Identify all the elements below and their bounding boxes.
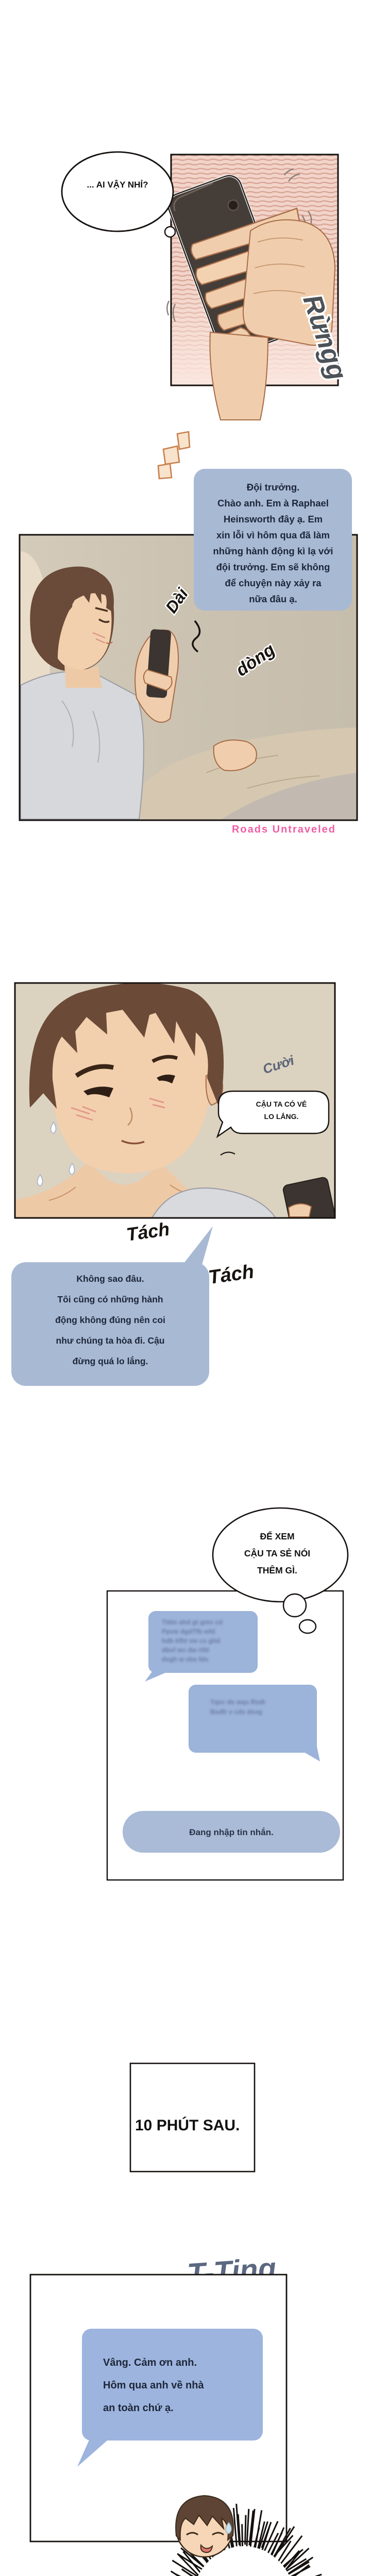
svg-text:Vâng. Cảm ơn anh.: Vâng. Cảm ơn anh. bbox=[103, 2357, 197, 2368]
svg-text:CẬU TA CÓ VẺ: CẬU TA CÓ VẺ bbox=[256, 1099, 307, 1108]
svg-text:hdb kfht vw cx ghd: hdb kfht vw cx ghd bbox=[162, 1637, 220, 1645]
svg-text:Đội trưởng.: Đội trưởng. bbox=[247, 482, 300, 493]
svg-text:Roads Untraveled: Roads Untraveled bbox=[232, 824, 336, 835]
svg-text:Tách: Tách bbox=[207, 1261, 256, 1289]
svg-text:10 PHÚT SAU.: 10 PHÚT SAU. bbox=[135, 2116, 240, 2134]
svg-text:để chuyện này xảy ra: để chuyện này xảy ra bbox=[225, 578, 322, 588]
svg-text:Tách: Tách bbox=[125, 1218, 171, 1245]
svg-text:như chúng ta hòa đi. Cậu: như chúng ta hòa đi. Cậu bbox=[56, 1335, 165, 1346]
svg-text:Hôm qua anh về nhà: Hôm qua anh về nhà bbox=[103, 2380, 204, 2391]
svg-text:nữa đâu ạ.: nữa đâu ạ. bbox=[249, 594, 297, 604]
svg-text:Chào anh. Em à Raphael: Chào anh. Em à Raphael bbox=[217, 498, 329, 509]
svg-text:Tidm ahd gt gmv cd: Tidm ahd gt gmv cd bbox=[162, 1619, 223, 1626]
svg-text:Heinsworth đây ạ. Em: Heinsworth đây ạ. Em bbox=[224, 514, 323, 524]
svg-text:xin lỗi vì hôm qua đã làm: xin lỗi vì hôm qua đã làm bbox=[216, 530, 330, 540]
svg-text:Ppvw dgdTfb wfd: Ppvw dgdTfb wfd bbox=[162, 1628, 215, 1635]
svg-text:LO LẮNG.: LO LẮNG. bbox=[264, 1112, 299, 1121]
svg-text:... AI VẬY NHỈ?: ... AI VẬY NHỈ? bbox=[87, 180, 148, 190]
svg-text:dbvf wv dw rtfd: dbvf wv dw rtfd bbox=[162, 1647, 209, 1654]
svg-text:Tôi cũng có những hành: Tôi cũng có những hành bbox=[57, 1294, 163, 1304]
svg-text:Đang nhập tin nhắn.: Đang nhập tin nhắn. bbox=[189, 1827, 273, 1837]
svg-text:Tqvc ds wqs Rsdt: Tqvc ds wqs Rsdt bbox=[210, 1699, 265, 1706]
svg-text:đội trưởng. Em sẽ không: đội trưởng. Em sẽ không bbox=[216, 562, 330, 572]
svg-text:an toàn chứ ạ.: an toàn chứ ạ. bbox=[103, 2402, 174, 2414]
svg-text:dvgh w vbs fds: dvgh w vbs fds bbox=[162, 1656, 208, 1663]
svg-text:những hành động kì lạ với: những hành động kì lạ với bbox=[213, 546, 333, 556]
svg-text:Không sao đâu.: Không sao đâu. bbox=[76, 1274, 144, 1284]
svg-text:Bsdfr v cds dsvg: Bsdfr v cds dsvg bbox=[210, 1708, 262, 1716]
svg-text:CẬU TA SẺ NÓI: CẬU TA SẺ NÓI bbox=[244, 1548, 310, 1558]
svg-text:đừng quá lo lắng.: đừng quá lo lắng. bbox=[73, 1355, 148, 1366]
svg-text:ĐỂ XEM: ĐỂ XEM bbox=[260, 1531, 294, 1541]
svg-text:THÊM GÌ.: THÊM GÌ. bbox=[257, 1565, 297, 1575]
svg-text:động không đúng nên coi: động không đúng nên coi bbox=[55, 1315, 165, 1325]
